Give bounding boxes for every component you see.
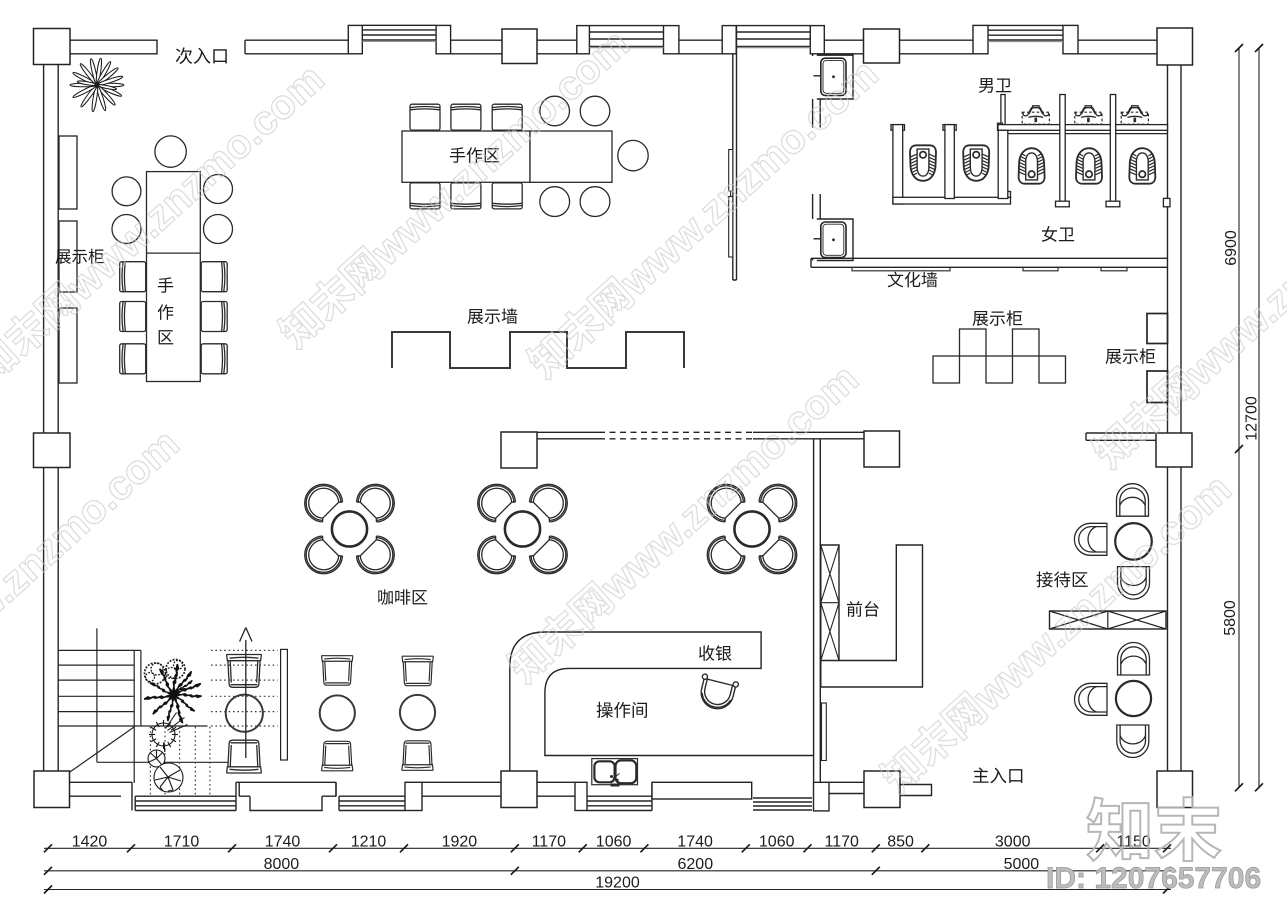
svg-text:1170: 1170: [532, 833, 567, 850]
svg-text:1420: 1420: [72, 833, 108, 850]
svg-text:ID: 1207657706: ID: 1207657706: [1046, 862, 1261, 895]
svg-text:1060: 1060: [596, 833, 632, 850]
svg-text:3000: 3000: [995, 833, 1031, 850]
svg-text:1170: 1170: [824, 833, 859, 850]
svg-text:5000: 5000: [1004, 856, 1040, 873]
svg-text:6200: 6200: [678, 856, 714, 873]
svg-text:www.znzmo.com: www.znzmo.com: [964, 465, 1240, 720]
svg-text:1920: 1920: [442, 833, 478, 850]
svg-text:1060: 1060: [759, 833, 795, 850]
svg-text:www.znzmo.com: www.znzmo.com: [0, 420, 188, 675]
svg-text:6900: 6900: [1223, 230, 1240, 266]
svg-text:1210: 1210: [351, 833, 387, 850]
svg-text:12700: 12700: [1244, 396, 1261, 441]
svg-text:1710: 1710: [164, 833, 200, 850]
svg-text:8000: 8000: [264, 856, 300, 873]
svg-text:850: 850: [887, 833, 914, 850]
svg-text:www.znzmo.com: www.znzmo.com: [1176, 140, 1287, 395]
svg-text:5800: 5800: [1222, 600, 1239, 636]
svg-text:1740: 1740: [265, 833, 301, 850]
svg-text:19200: 19200: [595, 875, 640, 892]
svg-text:1740: 1740: [677, 833, 713, 850]
